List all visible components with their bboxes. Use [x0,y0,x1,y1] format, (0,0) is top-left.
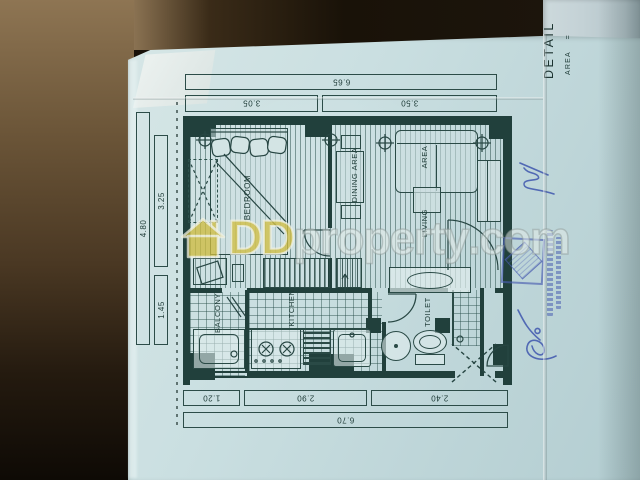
watermark-tld: .com [468,211,569,265]
room-label-dining: DINING AREA [349,139,361,211]
door-arc-toilet [388,294,416,322]
signature [520,163,554,194]
watermark-dd: DD [228,211,293,266]
dim-bar-top-bedroom: 3.25 [154,135,168,267]
dim-bar-left-total: 6.70 [183,412,508,428]
edge-shadow [598,0,640,480]
house-icon [180,215,226,261]
bed-pillows [211,136,287,157]
entry-cross-icon [452,344,496,382]
paper-crease [133,97,543,100]
dim-bar-left-toilet: 2.40 [371,390,508,406]
watermark-name: property [293,211,468,265]
faucet-dot [350,333,354,337]
room-label-kitchen: KITCHEN [286,286,297,330]
area-label: AREA [565,52,572,75]
balcony-door-swing [227,297,246,317]
equals-sign: = [565,34,572,39]
perforation-line [176,102,178,428]
dim-bar-left-kitchen: 2.90 [244,390,367,406]
title-area-line: AREA = [565,34,572,75]
room-label-balcony: BALCONY [212,288,223,338]
watermark: DDproperty.com [180,210,569,266]
signature [518,310,556,359]
dim-bar-right-total: 6.65 [185,74,497,90]
photographed-floorplan: BEDROOM DINING AREA LIVING AREA KITCHEN … [0,0,640,480]
shower-drain-icon [457,336,463,342]
room-label-living-2: AREA [419,135,431,179]
dim-bar-left-balcony: 1.20 [183,390,240,406]
burner-icon [255,342,294,362]
dim-bar-top-service: 1.45 [154,275,168,345]
washer-knob [231,351,237,357]
hall-arrow-icon [342,274,348,290]
room-label-toilet: TOILET [422,290,433,334]
dim-bar-top-total: 4.80 [136,112,150,345]
